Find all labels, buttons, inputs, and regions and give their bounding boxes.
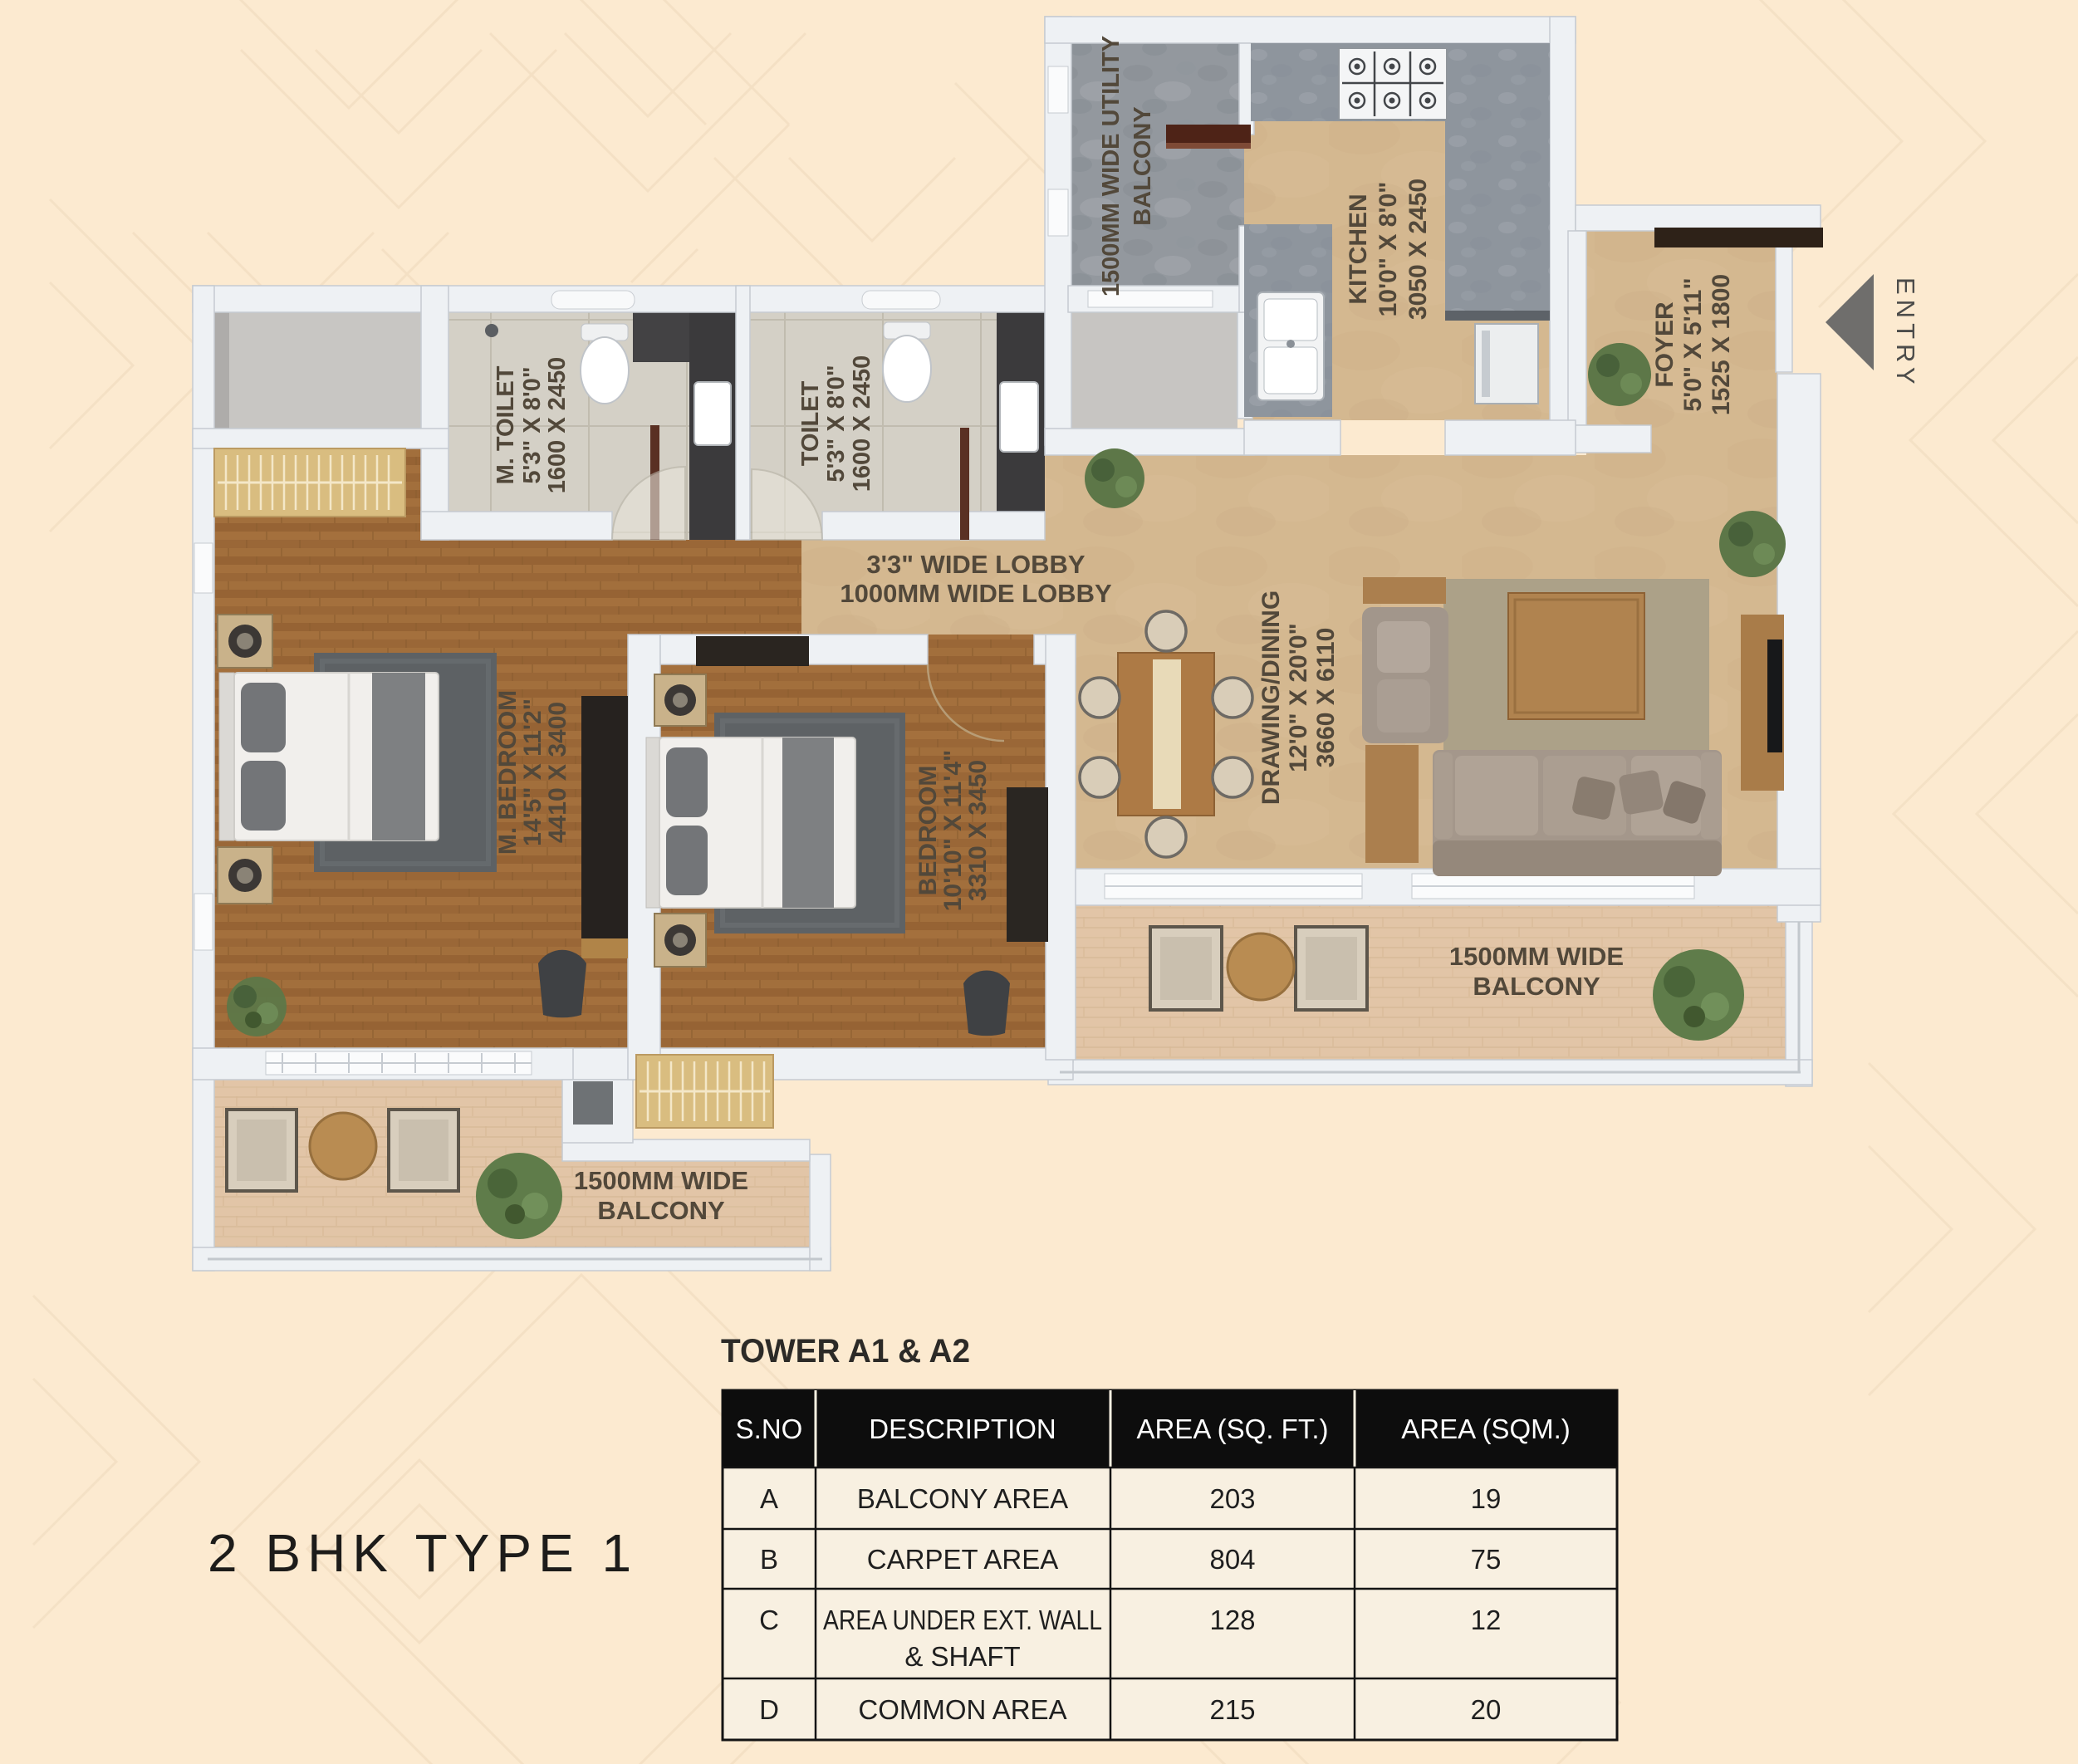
- svg-text:DRAWING/DINING: DRAWING/DINING: [1257, 590, 1285, 805]
- svg-text:COMMON AREA: COMMON AREA: [858, 1694, 1066, 1725]
- svg-text:1500MM WIDE: 1500MM WIDE: [574, 1166, 748, 1195]
- svg-text:S.NO: S.NO: [736, 1414, 803, 1444]
- svg-text:BALCONY: BALCONY: [1473, 972, 1600, 1001]
- svg-text:1500MM WIDE UTILITY: 1500MM WIDE UTILITY: [1098, 36, 1125, 296]
- svg-text:203: 203: [1209, 1483, 1255, 1514]
- svg-text:804: 804: [1209, 1544, 1255, 1575]
- svg-text:BALCONY AREA: BALCONY AREA: [857, 1483, 1068, 1514]
- svg-text:BEDROOM: BEDROOM: [914, 766, 942, 896]
- svg-text:M. TOILET: M. TOILET: [493, 365, 519, 484]
- svg-text:10'10" X 11'4": 10'10" X 11'4": [939, 750, 967, 912]
- svg-text:5'3" X 8'0": 5'3" X 8'0": [823, 365, 850, 482]
- svg-text:12: 12: [1471, 1605, 1502, 1635]
- svg-text:1600 X 2450: 1600 X 2450: [849, 355, 875, 492]
- svg-text:3310 X 3450: 3310 X 3450: [964, 760, 992, 901]
- svg-text:20: 20: [1471, 1694, 1502, 1725]
- svg-text:1000MM WIDE LOBBY: 1000MM WIDE LOBBY: [840, 579, 1112, 608]
- svg-text:12'0" X 20'0": 12'0" X 20'0": [1285, 623, 1312, 772]
- svg-text:AREA (SQM.): AREA (SQM.): [1401, 1414, 1571, 1444]
- svg-text:TOILET: TOILET: [797, 380, 824, 466]
- svg-text:BALCONY: BALCONY: [1130, 106, 1156, 225]
- svg-text:TOWER A1 & A2: TOWER A1 & A2: [721, 1333, 970, 1370]
- svg-text:128: 128: [1209, 1605, 1255, 1635]
- svg-text:D: D: [759, 1694, 779, 1725]
- svg-text:19: 19: [1471, 1483, 1502, 1514]
- svg-text:M. BEDROOM: M. BEDROOM: [494, 690, 522, 855]
- svg-text:1600 X 2450: 1600 X 2450: [544, 357, 571, 493]
- svg-text:14'5" X 11'2": 14'5" X 11'2": [519, 698, 546, 846]
- svg-text:C: C: [759, 1605, 779, 1635]
- svg-text:215: 215: [1209, 1694, 1255, 1725]
- svg-text:AREA (SQ. FT.): AREA (SQ. FT.): [1136, 1414, 1328, 1444]
- svg-text:2 BHK TYPE 1: 2 BHK TYPE 1: [208, 1523, 638, 1583]
- svg-text:KITCHEN: KITCHEN: [1345, 194, 1372, 304]
- svg-text:1525 X 1800: 1525 X 1800: [1708, 274, 1735, 415]
- svg-text:& SHAFT: & SHAFT: [904, 1641, 1020, 1672]
- svg-text:1500MM WIDE: 1500MM WIDE: [1449, 942, 1624, 971]
- svg-text:5'0" X 5'11": 5'0" X 5'11": [1679, 277, 1707, 411]
- svg-text:3660 X 6110: 3660 X 6110: [1312, 628, 1340, 768]
- svg-text:BALCONY: BALCONY: [597, 1196, 725, 1225]
- svg-text:10'0" X 8'0": 10'0" X 8'0": [1375, 182, 1402, 317]
- svg-text:B: B: [760, 1544, 778, 1575]
- svg-text:ENTRY: ENTRY: [1891, 277, 1920, 390]
- svg-text:4410 X 3400: 4410 X 3400: [544, 702, 571, 843]
- svg-text:FOYER: FOYER: [1651, 301, 1679, 388]
- svg-text:A: A: [760, 1483, 778, 1514]
- svg-text:5'3" X 8'0": 5'3" X 8'0": [519, 366, 546, 483]
- svg-text:75: 75: [1471, 1544, 1502, 1575]
- svg-text:3050 X 2450: 3050 X 2450: [1404, 179, 1432, 320]
- svg-text:AREA UNDER EXT. WALL: AREA UNDER EXT. WALL: [823, 1605, 1102, 1635]
- svg-text:DESCRIPTION: DESCRIPTION: [869, 1414, 1056, 1444]
- svg-text:3'3" WIDE LOBBY: 3'3" WIDE LOBBY: [866, 550, 1086, 579]
- svg-text:CARPET AREA: CARPET AREA: [867, 1544, 1058, 1575]
